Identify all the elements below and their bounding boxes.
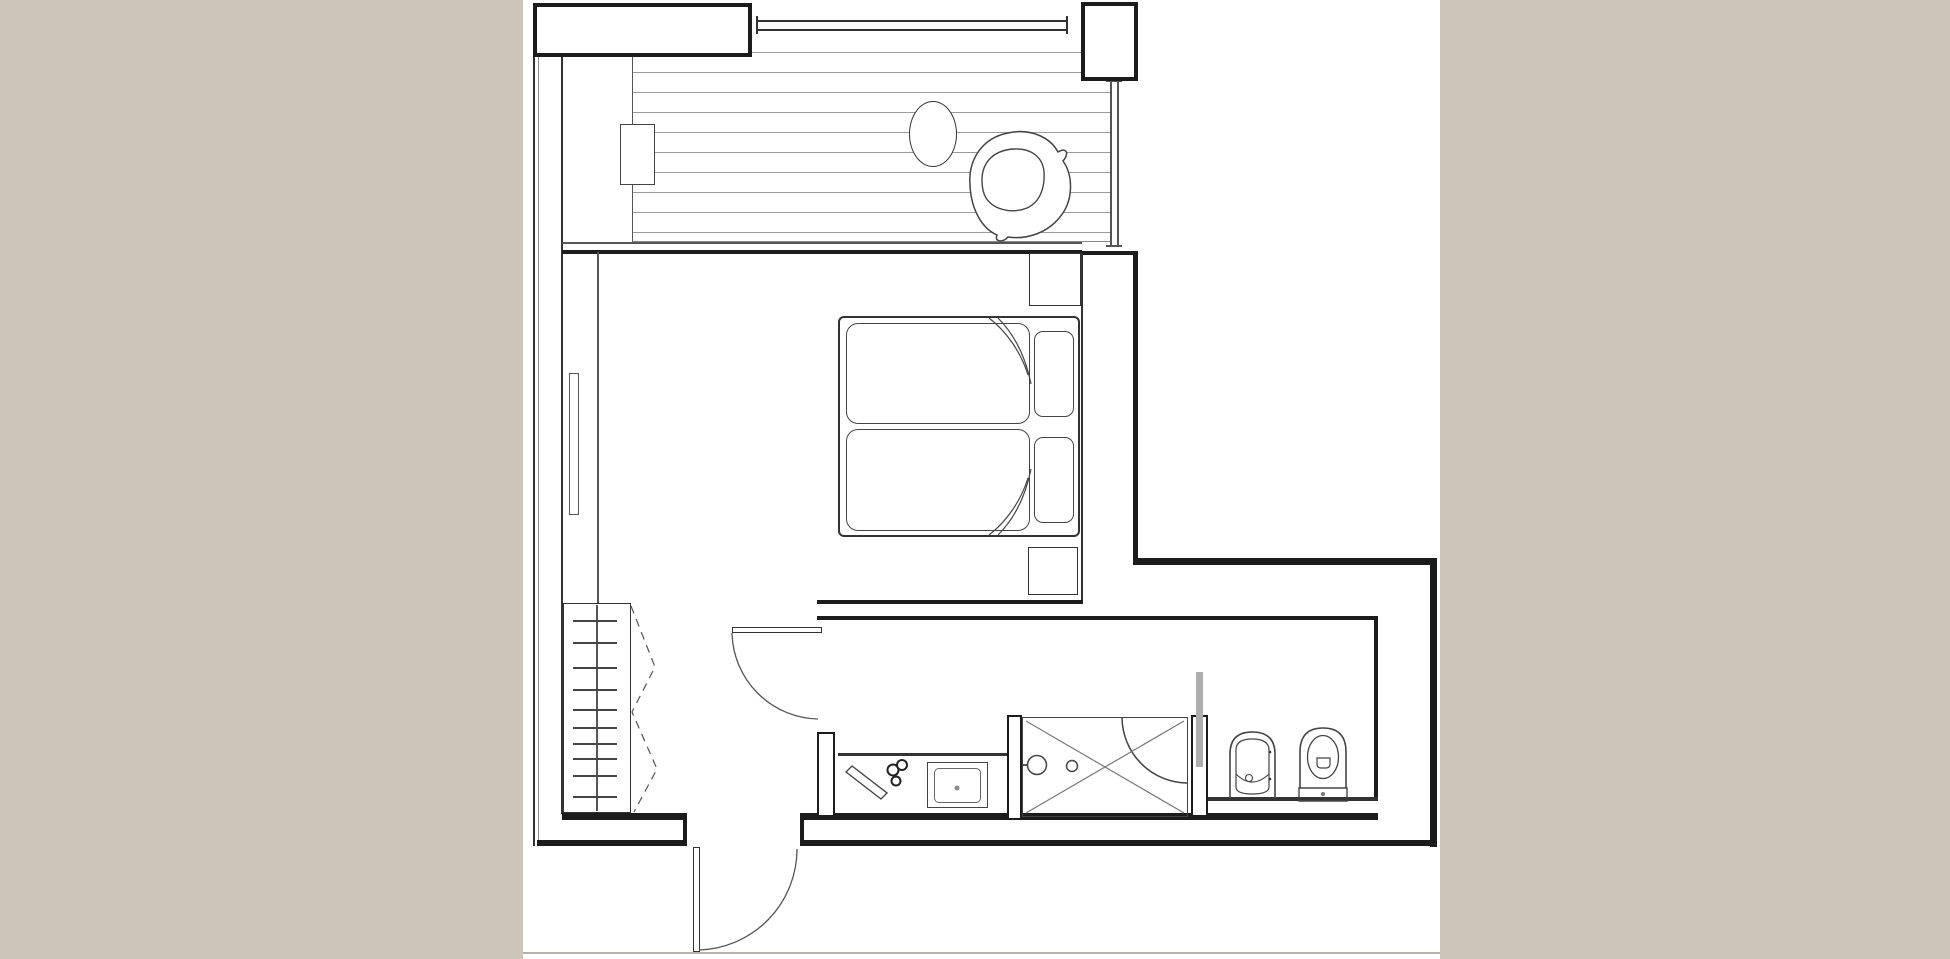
entrance-jamb-right: [800, 813, 804, 846]
balcony-decking: [632, 33, 1110, 242]
sink-inner: [934, 768, 981, 803]
wardrobe-hanger-tick: [573, 689, 617, 691]
railing-end-cap-left: [756, 16, 758, 34]
hall-wall-bottom: [817, 616, 1378, 620]
vanity-counter-edge: [838, 753, 1007, 756]
wardrobe-hanger-tick: [573, 667, 617, 669]
nightstand-top: [1029, 253, 1081, 306]
scan-edge-bottom: [523, 952, 1440, 954]
closet-front-line: [597, 252, 599, 603]
mattress-top: [846, 323, 1030, 424]
bedroom-door-leaf: [732, 627, 822, 633]
wardrobe-center-line: [596, 605, 598, 811]
bedroom-wall-face-lower: [1081, 565, 1083, 600]
wall-pier-shower-left: [1007, 715, 1022, 820]
wall-block-top-left: [533, 3, 752, 57]
wall-left-outer-a: [533, 57, 535, 846]
bedroom-right-wall: [1081, 251, 1138, 565]
hall-wall-top: [817, 600, 1083, 604]
balcony-glass-right-a: [1110, 81, 1112, 247]
balcony-window-wall-thin: [562, 242, 1082, 244]
wall-pier-vanity-left: [817, 732, 835, 817]
wall-left-outer-b: [538, 57, 539, 846]
wardrobe-hanger-tick: [573, 709, 617, 711]
wardrobe-hanger-tick: [573, 758, 617, 760]
balcony-glass-right-b: [1117, 81, 1119, 247]
entrance-door-leaf: [693, 847, 700, 952]
pillow-bottom: [1034, 437, 1074, 523]
glass-partition: [1196, 672, 1203, 767]
wardrobe-hanger-tick: [573, 743, 617, 745]
mattress-bottom: [846, 429, 1030, 531]
balcony-glass-cap-bottom: [1106, 245, 1122, 247]
radiator-left-wall: [569, 373, 579, 515]
wardrobe-hanger-tick: [573, 642, 617, 644]
wardrobe-hanger-tick: [573, 620, 617, 622]
wardrobe-hanger-tick: [573, 775, 617, 777]
balcony-railing-top-a: [757, 20, 1067, 22]
floor-plan-page: [0, 0, 1950, 959]
wall-bottom-inner-left: [562, 813, 687, 820]
wall-bottom-outer-left: [537, 840, 683, 846]
balcony-window-wall-main: [562, 250, 1082, 254]
wall-top-right-extension: [1137, 558, 1437, 565]
balcony-round-table: [909, 101, 957, 167]
wc-wall-right-inner: [1374, 620, 1378, 800]
balcony-railing-top-b: [757, 29, 1067, 31]
nightstand-bottom: [1028, 547, 1078, 595]
pillow-top: [1034, 331, 1074, 417]
wall-bottom-outer-right: [800, 840, 1437, 846]
wardrobe-hanger-tick: [573, 727, 617, 729]
entrance-jamb-left: [683, 820, 687, 846]
shower-basin: [1022, 717, 1188, 817]
wardrobe-hanger-tick: [573, 796, 617, 798]
railing-end-cap-right: [1066, 16, 1068, 34]
wall-pier-top-right: [1081, 2, 1138, 81]
wall-right-exterior: [1430, 558, 1437, 847]
wc-plumbing-ledge: [1208, 797, 1378, 801]
balcony-side-table: [620, 124, 655, 185]
